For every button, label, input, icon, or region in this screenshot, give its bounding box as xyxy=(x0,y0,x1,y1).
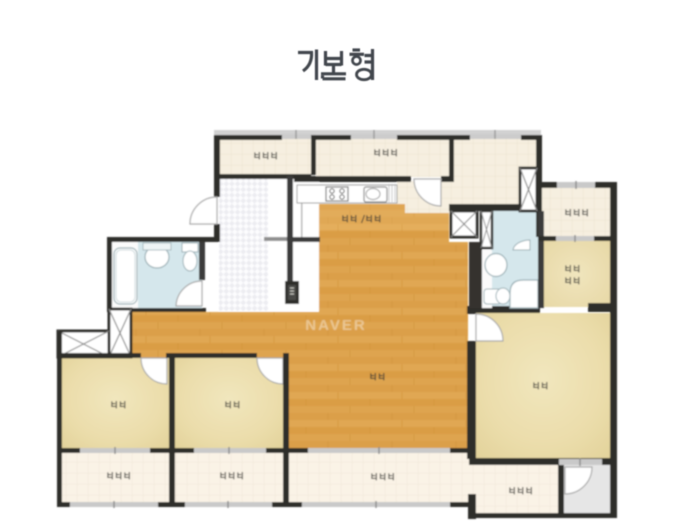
svg-text:NAVER: NAVER xyxy=(305,317,366,334)
